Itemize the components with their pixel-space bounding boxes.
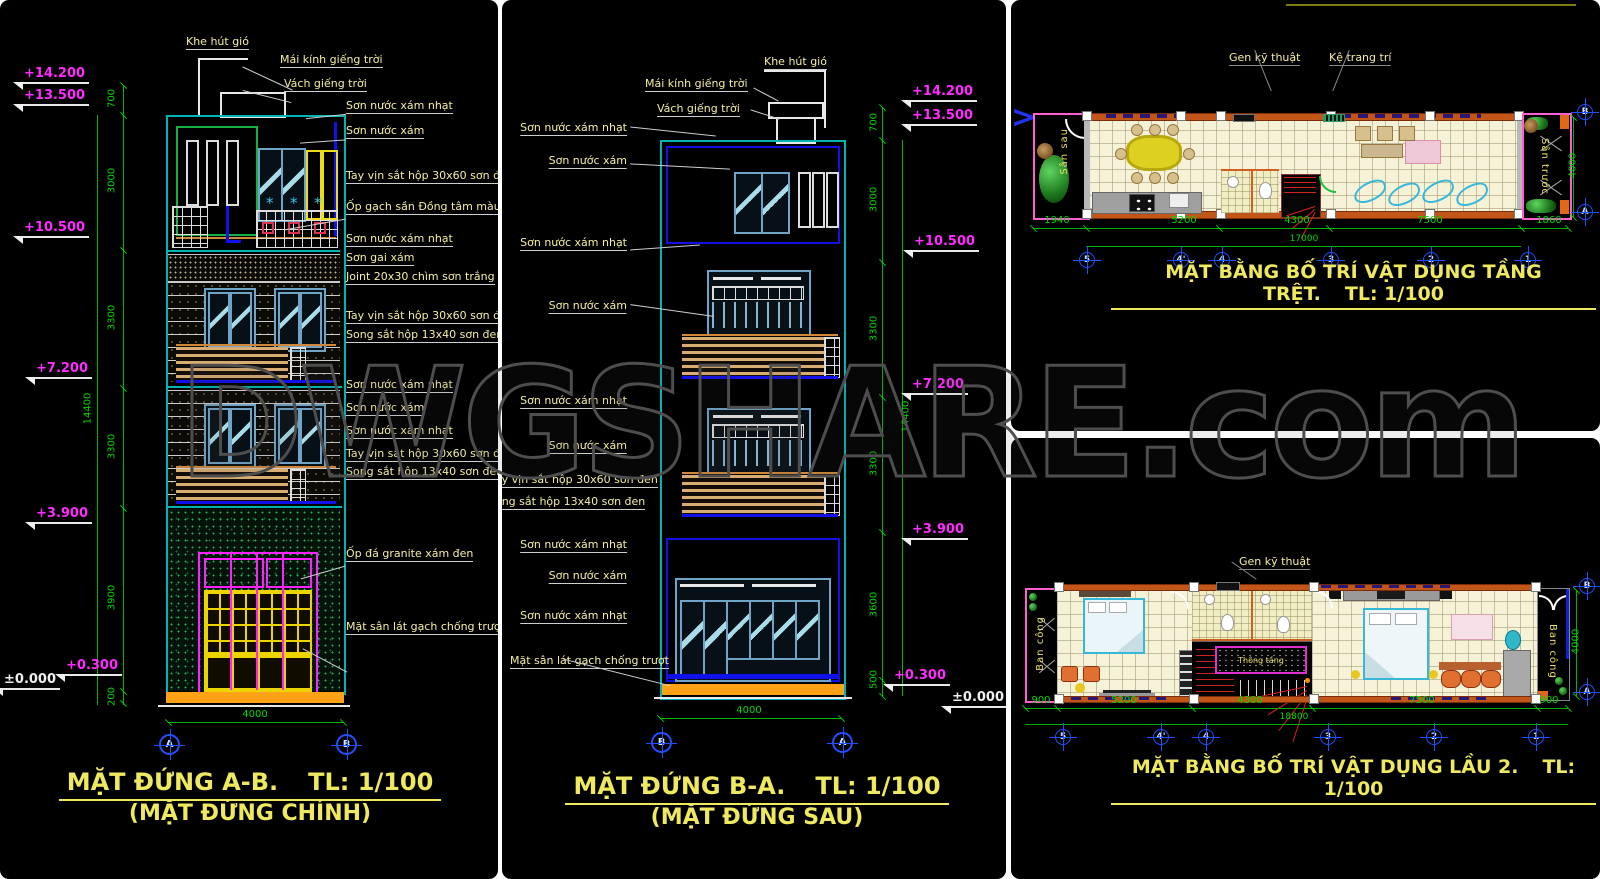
dim-text: 700 <box>869 101 880 145</box>
sink-icon <box>1260 594 1271 605</box>
headboard <box>1079 590 1131 597</box>
bed <box>1083 598 1145 654</box>
rail-line <box>682 472 838 474</box>
column <box>1531 582 1541 592</box>
material-label: Sơn nước xám <box>549 570 627 584</box>
plant-icon: * <box>266 194 274 212</box>
wall <box>1084 113 1090 217</box>
mullion <box>282 552 284 690</box>
blanket-fold <box>1365 652 1395 678</box>
window-leaf <box>230 292 252 348</box>
window-bar <box>713 415 753 418</box>
dim-text: 900 <box>1021 695 1061 706</box>
drawing-subtitle: (MẶT ĐỨNG SAU) <box>547 805 967 830</box>
shaft-hatch <box>1233 114 1255 122</box>
side-table <box>1075 683 1085 693</box>
louver-band <box>176 469 288 502</box>
material-label: Tay vịn sắt hộp 30x60 sơn đen <box>346 170 498 184</box>
sink-icon <box>1227 176 1239 188</box>
window <box>274 288 326 352</box>
rail-grid <box>290 347 306 382</box>
grid-bubble: B <box>1579 578 1595 594</box>
shutter-window <box>707 270 811 336</box>
callout-label: Kệ trang trí <box>1329 52 1391 66</box>
callout-label: Mái kính giếng trời <box>645 78 748 92</box>
column <box>1189 694 1199 704</box>
door-panes <box>204 590 312 654</box>
level-marker: +0.300 <box>64 658 122 676</box>
rail-grid <box>824 337 840 378</box>
blue-line <box>176 380 336 383</box>
material-label: Sơn nước xám nhạt <box>520 539 627 553</box>
nightstand <box>1429 670 1438 679</box>
material-label: Sơn nước xám nhạt <box>520 237 627 251</box>
vent-slot-line <box>824 70 826 128</box>
dim-text: 700 <box>107 77 118 121</box>
door-leaf <box>703 600 728 678</box>
window-dashes <box>1341 114 1481 118</box>
level-marker: +0.300 <box>892 668 950 686</box>
textured-band <box>168 254 340 282</box>
plant-icon <box>1029 593 1037 601</box>
armchair-icon <box>1083 666 1100 682</box>
newel-dot <box>1305 678 1310 683</box>
plant-icon: * <box>314 194 322 212</box>
dim-text: 4000 <box>1568 144 1579 188</box>
plant-icon <box>1559 687 1567 695</box>
title-text: MẶT BẰNG BỐ TRÍ VẬT DỤNG LẦU 2. <box>1132 756 1519 778</box>
base-strip <box>166 692 344 703</box>
pillow <box>1395 613 1417 625</box>
material-label: Sơn nước xám nhạt <box>346 100 453 114</box>
dim-text: 3000 <box>107 159 118 203</box>
planter-block <box>1560 200 1569 214</box>
rail-grid <box>824 475 840 516</box>
title-text: MẶT ĐỨNG A-B. <box>67 768 278 796</box>
drawing-subtitle: (MẶT ĐỨNG CHÍNH) <box>40 801 460 826</box>
dim-text: 3000 <box>869 178 880 222</box>
coffee-table <box>1361 144 1403 158</box>
balcony-grid <box>172 206 208 248</box>
window-leaf <box>278 408 300 464</box>
armchair-icon <box>1399 126 1415 141</box>
window-leaf <box>734 172 763 234</box>
window-leaf <box>795 600 820 660</box>
material-label: Ốp đá granite xám đen <box>346 548 473 562</box>
dim-line <box>1086 246 1521 247</box>
flower-pot <box>262 222 274 234</box>
nightstand <box>1351 670 1360 679</box>
pane-row <box>712 286 804 300</box>
window-leaf <box>208 292 230 348</box>
column <box>1054 582 1064 592</box>
vent-slot-line <box>198 58 200 115</box>
plant-icon <box>1029 603 1037 611</box>
storefront <box>675 578 831 682</box>
grid-bubble: A <box>1579 684 1595 700</box>
dim-text: 4000 <box>1571 620 1582 664</box>
dim-text: 4300 <box>1225 695 1275 706</box>
mullion <box>256 552 258 690</box>
chair-icon <box>1183 148 1195 160</box>
level-marker: +13.500 <box>910 108 977 126</box>
material-label: Sơn nước xám <box>346 125 424 139</box>
rail-line <box>176 344 336 346</box>
chair-icon <box>1149 172 1161 184</box>
sofa-cushion <box>1481 670 1501 688</box>
plant-icon: * <box>290 194 298 212</box>
dim-text: 3300 <box>107 425 118 469</box>
material-label: Mặt sân lát gạch chống trượt <box>510 655 669 669</box>
dim-text: 18800 <box>1269 712 1319 722</box>
blue-band <box>666 674 838 679</box>
drawing-title: MẶT ĐỨNG A-B.TL: 1/100 <box>40 768 460 801</box>
pane-row <box>712 424 804 438</box>
column <box>1082 111 1092 121</box>
dim-text: 900 <box>1529 695 1569 706</box>
partition <box>1251 170 1253 213</box>
vent-slot-line <box>764 70 826 72</box>
rug <box>1405 140 1441 164</box>
rear-elevation-panel: 700 3000 3300 3300 3600 500 14400 +14.20… <box>502 0 1006 879</box>
material-label: Song sắt hộp 13x40 sơn đen <box>346 329 498 343</box>
slat-icon <box>206 140 219 206</box>
level-marker: +7.200 <box>910 377 968 395</box>
window-dashes <box>1106 114 1176 118</box>
title-scale: TL: 1/100 <box>815 772 940 800</box>
material-label: Sơn gai xám <box>346 252 414 266</box>
void-box: Thông tầng <box>1215 646 1307 674</box>
teal-line <box>166 506 342 508</box>
window-leaf <box>726 600 751 660</box>
dim-text: 17000 <box>1279 234 1329 244</box>
teal-line <box>166 386 342 388</box>
title-scale: TL: 1/100 <box>1345 283 1444 305</box>
blue-pipe <box>226 206 241 243</box>
grid-bubble: A <box>159 734 180 755</box>
pillow <box>1109 602 1127 613</box>
teal-line <box>168 250 340 252</box>
callout-label: Vách giếng trời <box>284 78 367 92</box>
slat-icon <box>798 172 811 228</box>
transom <box>204 558 264 588</box>
ground-line <box>158 705 350 707</box>
level-marker: ±0.000 <box>2 672 60 690</box>
sink-icon <box>1169 193 1189 208</box>
slat-icon <box>226 140 239 206</box>
window-bar <box>761 277 801 280</box>
window-bar <box>713 277 753 280</box>
grid-bubble: A <box>1577 204 1593 220</box>
callout-label: Gen kỹ thuật <box>1239 556 1310 570</box>
window <box>204 404 256 468</box>
column <box>1326 209 1336 219</box>
dim-line <box>882 107 883 697</box>
sofa-cushion <box>1461 670 1481 688</box>
area-label: Ban công <box>1035 616 1046 671</box>
column <box>1216 111 1226 121</box>
blue-line <box>682 514 838 517</box>
armchair-icon <box>1061 666 1078 682</box>
bed <box>1363 608 1429 680</box>
material-label: Ốp gạch sần Đồng tâm màu x <box>346 201 498 215</box>
material-label: Song sắt hộp 13x40 sơn đen <box>346 466 498 480</box>
stove-icon <box>1129 194 1155 212</box>
window-bar <box>761 415 801 418</box>
leader-line <box>753 87 778 101</box>
vent-slot-line <box>198 58 248 60</box>
stair-treads <box>1284 177 1316 193</box>
dim-line <box>168 722 344 723</box>
dim-text: 1940 <box>1037 215 1077 226</box>
front-elevation-panel: * * * 700 3000 3300 3300 3900 200 14400 … <box>0 0 498 879</box>
frame-edge-line <box>1286 4 1576 6</box>
plan-title: MẶT BẰNG BỐ TRÍ VẬT DỤNG TẦNG TRỆT.TL: 1… <box>1111 261 1596 310</box>
blue-line <box>682 376 838 379</box>
material-label: Sơn nước xám nhạt <box>346 379 453 393</box>
dim-text: 1860 <box>1529 215 1569 226</box>
grid-bubble: 1 <box>1528 729 1544 745</box>
grid-bubble: A <box>832 732 853 753</box>
chair-icon <box>1149 124 1161 136</box>
area-label: Sân trước <box>1539 138 1550 195</box>
grid-bubble: B <box>1577 104 1593 120</box>
dim-line <box>1025 724 1568 725</box>
partition <box>1221 169 1279 171</box>
material-label: Tay vịn sắt hộp 30x60 sơn đen <box>346 448 498 462</box>
title-scale: TL: 1/100 <box>308 768 433 796</box>
level-marker: +10.500 <box>912 234 979 252</box>
slat-icon <box>186 140 199 206</box>
grid-bubble: 4' <box>1153 729 1169 745</box>
sink-icon <box>1204 594 1215 605</box>
callout-label: Mái kính giếng trời <box>280 54 383 68</box>
plan-title: MẶT BẰNG BỐ TRÍ VẬT DỤNG LẦU 2.TL: 1/100 <box>1111 756 1596 805</box>
blue-line <box>176 501 336 504</box>
grid-bubble: B <box>651 732 672 753</box>
window-leaf <box>300 292 322 348</box>
dim-text: 3600 <box>869 583 880 627</box>
grid-bubble: 4 <box>1198 729 1214 745</box>
toilet-icon <box>1277 616 1290 633</box>
slat-icon <box>812 172 825 228</box>
window-leaf <box>278 292 300 348</box>
door-swing-icon <box>1539 595 1554 610</box>
window-dashes <box>1321 585 1451 588</box>
ground-line <box>654 697 852 699</box>
dim-text: 4300 <box>1272 215 1322 226</box>
level-marker: +3.900 <box>34 506 92 524</box>
dining-table <box>1126 135 1182 171</box>
dim-text: 200 <box>107 675 118 719</box>
transom <box>266 558 312 588</box>
column <box>1425 111 1435 121</box>
drawing-title: MẶT ĐỨNG B-A.TL: 1/100 <box>547 772 967 805</box>
blanket-fold <box>1117 630 1143 652</box>
material-label: Sơn nước xám nhạt <box>346 233 453 247</box>
dim-text: 3300 <box>107 296 118 340</box>
callout-label: Khe hút gió <box>186 36 249 50</box>
dim-text: 14400 <box>901 395 912 439</box>
material-label: Sơn nước xám nhạt <box>346 425 453 439</box>
wall <box>1057 584 1537 591</box>
speaker-icon <box>1440 590 1452 599</box>
dim-text: 14400 <box>83 387 94 431</box>
material-label: Sơn nước xám <box>549 300 627 314</box>
grid-bubble: 5 <box>1055 729 1071 745</box>
planter-block <box>1560 115 1569 129</box>
sofa-back <box>1439 662 1501 670</box>
dim-line <box>123 85 124 705</box>
chair-icon <box>1167 172 1179 184</box>
plant-icon <box>1526 199 1556 213</box>
column <box>1189 582 1199 592</box>
window-bar <box>752 584 816 587</box>
shutter-slats <box>712 302 802 328</box>
material-label: Sơn nước xám <box>549 155 627 169</box>
dim-text: 7500 <box>1405 215 1455 226</box>
louver-band <box>682 475 824 514</box>
chaise <box>1451 614 1493 640</box>
floor2-plan-panel: Ban công Thông tầng <box>1011 438 1600 879</box>
plant-icon <box>1037 143 1053 159</box>
partition <box>1251 588 1253 641</box>
window-leaf <box>230 408 252 464</box>
dim-text: 4000 <box>230 709 280 720</box>
ground-plan-panel: > Sân sau Gen kỹ thuật <box>1011 0 1600 431</box>
level-marker: +14.200 <box>22 66 89 84</box>
dim-line <box>660 718 842 719</box>
rail-line <box>176 466 336 468</box>
material-label: Sơn nước xám nhạt <box>520 395 627 409</box>
mullion <box>230 552 232 690</box>
column <box>1309 582 1319 592</box>
level-marker: +10.500 <box>22 220 89 238</box>
shaft-hatch <box>1216 582 1240 591</box>
shelf-hatch <box>1323 114 1345 122</box>
toilet-icon <box>1221 614 1234 631</box>
cad-collage: { "watermark": "DWGSHARE.com", "icons": … <box>0 0 1600 879</box>
dim-line <box>1025 708 1568 709</box>
grid-bubble: 2 <box>1426 729 1442 745</box>
armchair-icon <box>1377 126 1393 141</box>
door-panes <box>204 654 312 692</box>
louver-band <box>176 347 288 380</box>
dim-text: 5200 <box>1159 215 1209 226</box>
grid-bubble: 3 <box>1320 729 1336 745</box>
area-label: Ban công <box>1547 624 1558 679</box>
chair-icon <box>1131 172 1143 184</box>
dim-text: 7500 <box>1397 695 1447 706</box>
material-label: Song sắt hộp 13x40 sơn đen <box>502 496 645 510</box>
shutter-window <box>707 408 811 474</box>
grid-bubble: B <box>336 734 357 755</box>
dim-line <box>1033 228 1568 229</box>
dim-text: 3300 <box>869 307 880 351</box>
toilet-icon <box>1259 182 1272 199</box>
chair-icon <box>1167 124 1179 136</box>
rail-line <box>682 334 838 336</box>
cabinet <box>1503 650 1531 698</box>
window-leaf <box>300 408 322 464</box>
armchair-icon <box>1355 126 1371 141</box>
dim-text: 3900 <box>107 576 118 620</box>
material-label: Sơn nước xám <box>549 440 627 454</box>
callout-label: Gen kỹ thuật <box>1229 52 1300 66</box>
material-label: Sơn nước xám nhạt <box>520 122 627 136</box>
dim-text: 5200 <box>1099 695 1149 706</box>
material-label: Sơn nước xám nhạt <box>520 610 627 624</box>
window-leaf <box>761 172 790 234</box>
material-label: Mặt sân lát gạch chống trượt <box>346 621 498 635</box>
speaker-icon <box>1329 590 1341 599</box>
blue-rail <box>1566 589 1569 659</box>
rail-grid <box>290 469 306 504</box>
door-leaf <box>680 600 705 678</box>
shutter-slats <box>712 440 802 466</box>
column <box>1176 111 1186 121</box>
material-label: Sơn nước xám <box>346 402 424 416</box>
chair-icon <box>1131 124 1143 136</box>
level-marker: +3.900 <box>910 522 968 540</box>
dim-text: 4000 <box>724 705 774 716</box>
column <box>1082 209 1092 219</box>
dim-text: 500 <box>869 658 880 702</box>
window-leaf <box>749 600 774 660</box>
window-leaf <box>772 600 797 660</box>
callout-label: Khe hút gió <box>764 56 827 70</box>
dim-text: 3300 <box>869 442 880 486</box>
level-marker: +13.500 <box>22 88 89 106</box>
column <box>1309 694 1319 704</box>
level-marker: +7.200 <box>34 361 92 379</box>
louver-band <box>682 337 824 376</box>
window-bar <box>680 584 744 587</box>
pillow <box>1369 613 1391 625</box>
pillow <box>1088 602 1106 613</box>
sofa-cushion <box>1441 670 1461 688</box>
area-label: Sân sau <box>1059 128 1070 175</box>
slat-icon <box>826 172 839 228</box>
window <box>204 288 256 352</box>
plant-icon <box>1524 119 1538 133</box>
basin-icon <box>1505 630 1521 650</box>
grid-bubble: 5 <box>1079 252 1095 268</box>
window <box>274 404 326 468</box>
callout-label: Vách giếng trời <box>657 103 740 117</box>
title-text: MẶT ĐỨNG B-A. <box>573 772 785 800</box>
material-label: Tay vịn sắt hộp 30x60 sơn đen <box>346 310 498 324</box>
level-marker: +14.200 <box>910 84 977 102</box>
leader-line <box>630 127 716 137</box>
dim-line <box>97 115 98 705</box>
window-leaf <box>208 408 230 464</box>
material-label: Joint 20x30 chìm sơn trắng <box>346 271 495 285</box>
chair-icon <box>1115 148 1127 160</box>
level-marker: ±0.000 <box>950 690 1006 708</box>
material-label: Tay vịn sắt hộp 30x60 sơn đen <box>502 474 658 488</box>
base-strip <box>662 684 844 695</box>
